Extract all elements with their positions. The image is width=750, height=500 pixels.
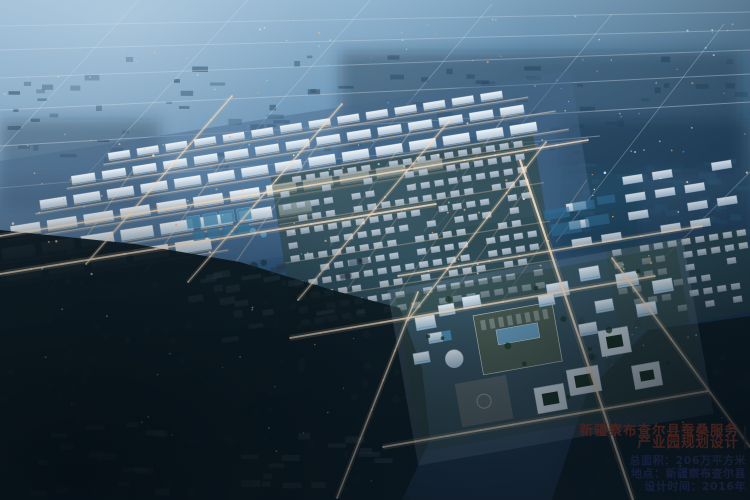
- stat-total-area: 总面积：206万平方米: [580, 454, 747, 467]
- project-caption: 新疆察布查尔县蚕桑服务 产业园规划设计 总面积：206万平方米 地点：新疆察布查…: [580, 426, 747, 493]
- stat-design-year: 设计时间：2016年: [580, 480, 747, 493]
- project-stats: 总面积：206万平方米 地点：新疆察布查尔县 设计时间：2016年: [580, 454, 747, 493]
- stat-location: 地点：新疆察布查尔县: [580, 467, 747, 480]
- aerial-night-render: 新疆察布查尔县蚕桑服务 产业园规划设计 总面积：206万平方米 地点：新疆察布查…: [0, 0, 750, 500]
- project-title: 新疆察布查尔县蚕桑服务 产业园规划设计: [580, 426, 747, 449]
- project-title-line2: 产业园规划设计: [580, 438, 740, 449]
